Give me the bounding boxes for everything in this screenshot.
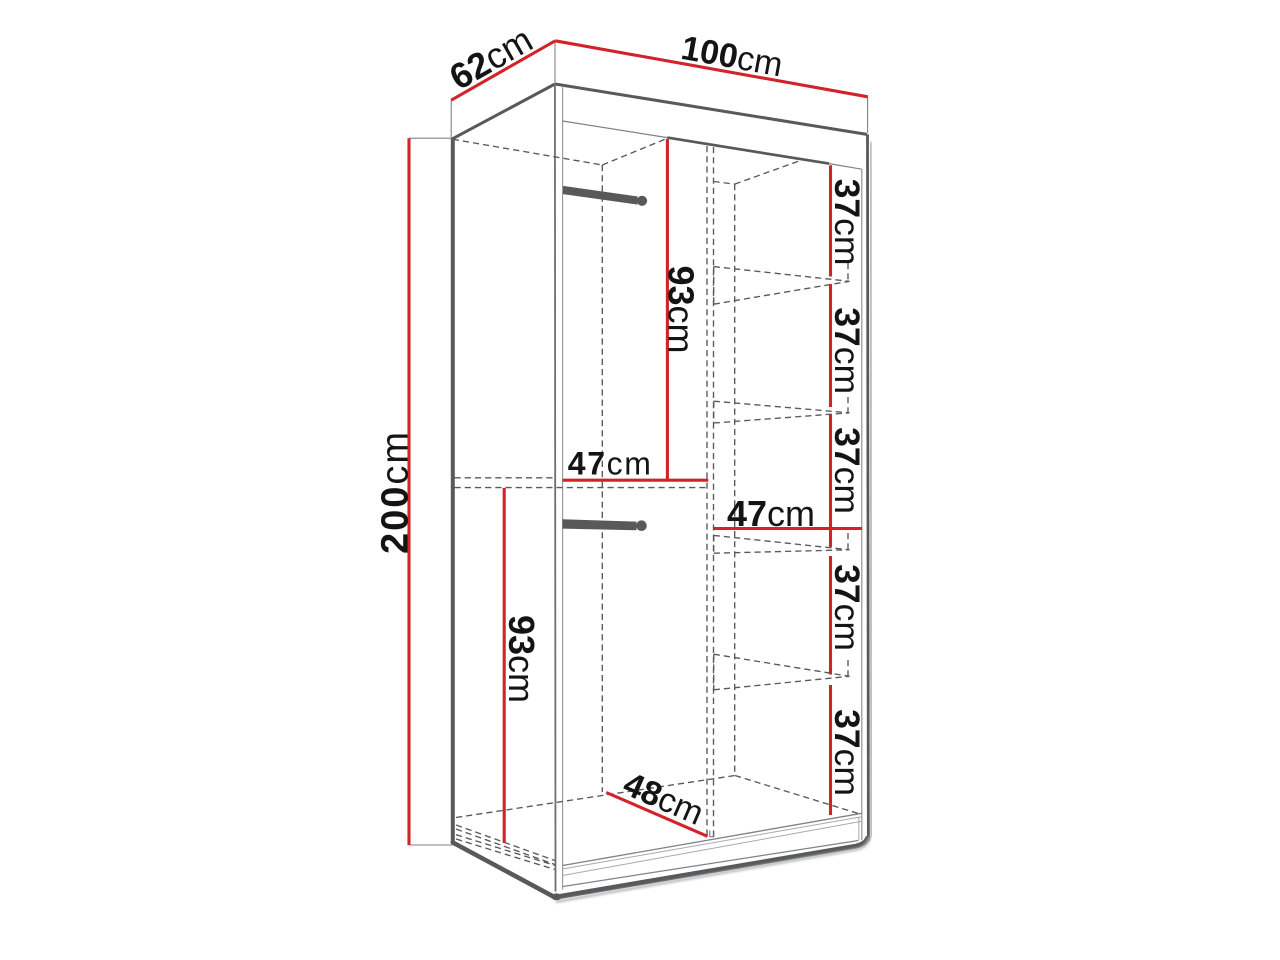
svg-text:37cm: 37cm <box>827 427 867 514</box>
svg-text:37cm: 37cm <box>827 564 867 651</box>
svg-text:47cm: 47cm <box>727 493 815 534</box>
svg-text:62cm: 62cm <box>442 19 539 98</box>
svg-text:37cm: 37cm <box>827 307 867 394</box>
svg-text:100cm: 100cm <box>678 29 785 84</box>
svg-text:93cm: 93cm <box>661 265 702 353</box>
svg-text:37cm: 37cm <box>827 179 867 266</box>
svg-text:47cm: 47cm <box>568 446 653 482</box>
svg-text:200cm: 200cm <box>375 430 417 554</box>
svg-text:48cm: 48cm <box>618 765 709 833</box>
svg-text:93cm: 93cm <box>501 615 542 703</box>
svg-text:37cm: 37cm <box>827 709 867 796</box>
